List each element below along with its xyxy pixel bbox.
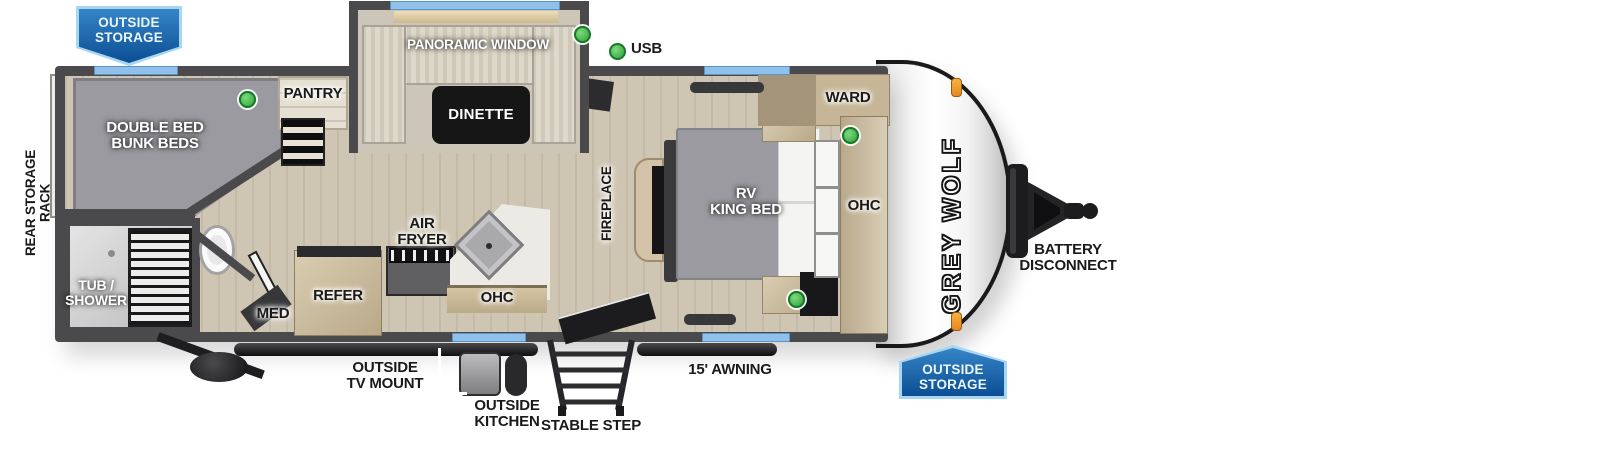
battery-disconnect-label: BATTERY DISCONNECT (1008, 242, 1128, 274)
awning-rail-right (637, 343, 777, 356)
king-bed-label: RV KING BED (696, 186, 796, 218)
shelf-divider (816, 186, 838, 189)
outside-storage-rear-label: OUTSIDE STORAGE (95, 15, 163, 45)
shelf-divider (816, 232, 838, 235)
usb-indicator-icon (788, 291, 805, 308)
floorplan-canvas: REAR STORAGE RACK GREY WOLF BATTERY DISC… (0, 0, 1600, 455)
refrigerator-top (297, 246, 381, 257)
bunk-beds-label: DOUBLE BED BUNK BEDS (88, 120, 222, 152)
med-label: MED (250, 306, 296, 322)
outside-kitchen-cord (438, 348, 467, 395)
usb-legend-icon (609, 43, 626, 60)
clearance-marker-icon (951, 78, 962, 97)
window (390, 1, 560, 10)
outside-storage-flag-front: OUTSIDE STORAGE (899, 345, 1007, 399)
stove-grate (389, 248, 453, 263)
awning-label: 15' AWNING (680, 362, 780, 378)
rear-storage-rack-label: REAR STORAGE RACK (24, 134, 53, 272)
window (702, 333, 790, 342)
bedroom-storage-block (800, 272, 838, 316)
usb-indicator-icon (239, 91, 256, 108)
pantry-label: PANTRY (278, 86, 348, 102)
air-fryer-label: AIR FRYER (390, 216, 454, 248)
window (704, 66, 790, 75)
outside-storage-flag-rear: OUTSIDE STORAGE (76, 6, 182, 66)
outside-kitchen-cylinder (505, 354, 527, 396)
wall-tv-bottom (684, 314, 736, 325)
slideout-light-strip (394, 11, 558, 23)
refer-label: REFER (294, 288, 382, 304)
tub-shower-label: TUB / SHOWER (64, 278, 128, 308)
ward-label: WARD (806, 90, 890, 106)
window (452, 333, 526, 342)
usb-indicator-icon (574, 26, 591, 43)
bunk-wall (65, 209, 195, 218)
panoramic-window-label: PANORAMIC WINDOW (396, 38, 560, 53)
stable-step-label: STABLE STEP (536, 418, 646, 434)
bedroom-overhead-cabinet (840, 116, 888, 334)
fireplace-label: FIREPLACE (600, 154, 615, 254)
dinette-table: DINETTE (432, 86, 530, 144)
shower-head-icon (108, 250, 115, 257)
dinette-label: DINETTE (448, 107, 514, 124)
brand-logo: GREY WOLF (938, 104, 967, 314)
flag-face: OUTSIDE STORAGE (79, 9, 179, 63)
ohc-kitchen-label: OHC (447, 290, 547, 306)
sink-drain (486, 243, 492, 249)
outside-storage-front-label: OUTSIDE STORAGE (919, 362, 987, 392)
flag-face: OUTSIDE STORAGE (902, 348, 1004, 396)
wall-tv-top (690, 82, 764, 93)
ohc-bedroom-label: OHC (840, 198, 888, 214)
usb-legend-label: USB (631, 41, 671, 57)
clearance-marker-icon (951, 312, 962, 331)
shelf-unit (814, 140, 840, 278)
usb-indicator-icon (842, 127, 859, 144)
outside-tv-mount-label: OUTSIDE TV MOUNT (330, 360, 440, 392)
window (94, 66, 178, 75)
pantry-shelves (281, 118, 325, 166)
shower-door (128, 228, 192, 327)
tv-mount-base (190, 352, 248, 382)
